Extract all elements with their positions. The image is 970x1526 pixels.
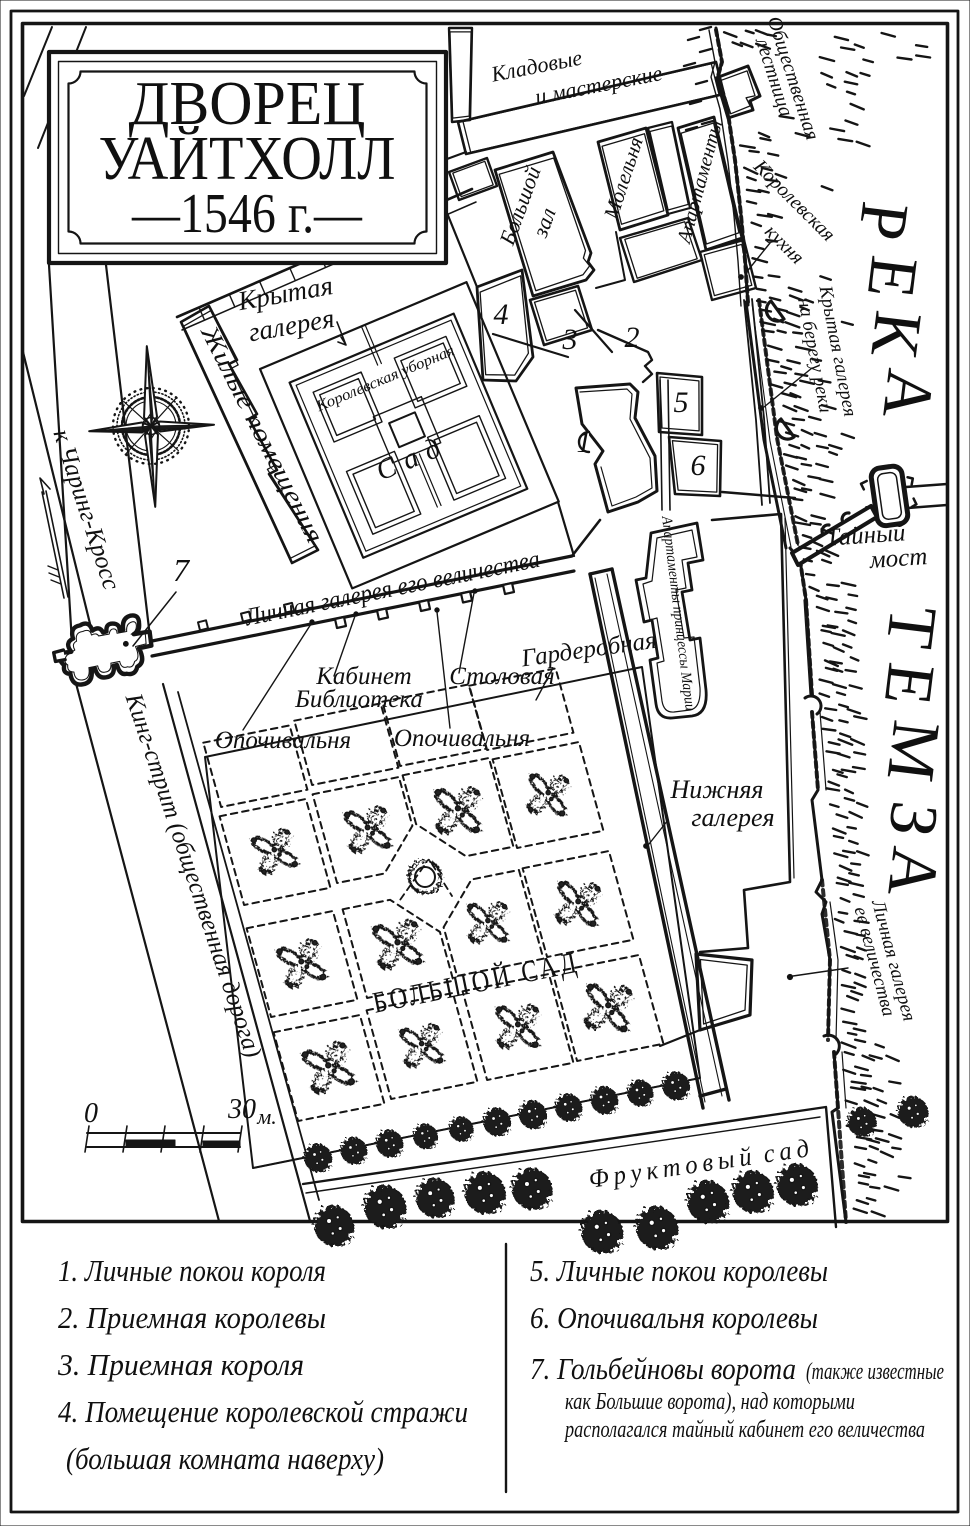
svg-text:А: А: [873, 843, 954, 901]
svg-text:6. Опочивальня королевы: 6. Опочивальня королевы: [530, 1300, 818, 1335]
svg-text:7. Гольбейновы ворота: 7. Гольбейновы ворота: [530, 1351, 796, 1386]
svg-text:1. Личные покои короля: 1. Личные покои короля: [58, 1253, 326, 1288]
svg-text:как Большие ворота), над котор: как Большие ворота), над которыми: [565, 1389, 855, 1415]
svg-text:А: А: [868, 365, 949, 423]
svg-text:3: 3: [562, 323, 578, 356]
svg-text:30: 30: [227, 1094, 256, 1125]
svg-text:4. Помещение королевской страж: 4. Помещение королевской стражи: [58, 1394, 468, 1429]
svg-text:(также известные: (также известные: [806, 1359, 944, 1385]
svg-text:Нижняя: Нижняя: [669, 775, 763, 804]
svg-text:м.: м.: [256, 1104, 277, 1129]
svg-text:1: 1: [577, 426, 592, 459]
svg-text:Библиотека: Библиотека: [294, 686, 423, 713]
svg-text:2: 2: [625, 321, 640, 354]
svg-text:0: 0: [84, 1098, 98, 1129]
svg-text:2. Приемная королевы: 2. Приемная королевы: [58, 1300, 326, 1335]
svg-text:М: М: [873, 716, 956, 785]
svg-text:6: 6: [691, 449, 706, 482]
svg-text:5. Личные покои королевы: 5. Личные покои королевы: [530, 1253, 828, 1288]
svg-text:располагался тайный кабинет ег: располагался тайный кабинет его величест…: [563, 1417, 925, 1443]
svg-text:галерея: галерея: [691, 803, 774, 832]
svg-text:(большая комната наверху): (большая комната наверху): [66, 1441, 384, 1476]
svg-text:—1546 г.—: —1546 г.—: [131, 183, 363, 245]
svg-text:Опочивальня: Опочивальня: [394, 725, 530, 752]
svg-text:7: 7: [173, 552, 191, 588]
svg-text:4: 4: [494, 298, 509, 331]
svg-text:5: 5: [674, 386, 689, 419]
svg-text:мост: мост: [868, 543, 928, 574]
svg-text:3. Приемная короля: 3. Приемная короля: [57, 1347, 304, 1382]
